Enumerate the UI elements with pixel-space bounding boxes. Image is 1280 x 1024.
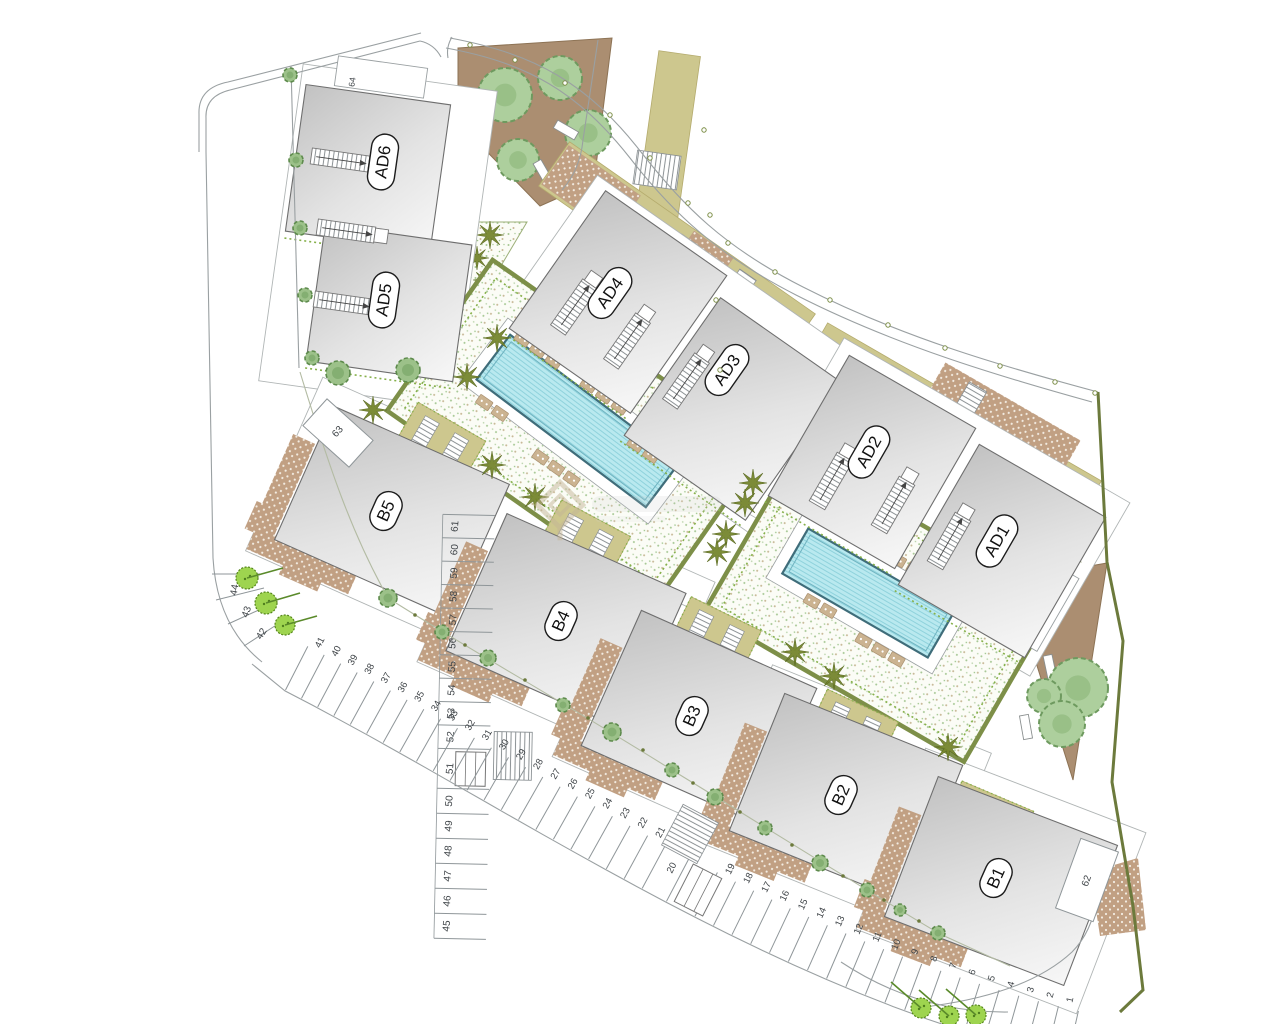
tree-icon xyxy=(931,926,945,940)
palm-icon xyxy=(731,489,759,517)
parking-space-18: 18 xyxy=(741,871,756,885)
tree-icon xyxy=(665,763,679,777)
tree-icon xyxy=(435,625,449,639)
palm-icon xyxy=(476,221,504,249)
tree-icon xyxy=(379,589,397,607)
site-plan-canvas: AD6AD5AD4AD3AD2AD1B5B4B3B2B1616059585756… xyxy=(0,0,1280,1024)
tree-icon xyxy=(707,789,723,805)
tree-icon xyxy=(298,288,312,302)
parking-space-17: 17 xyxy=(759,880,774,894)
bench xyxy=(1019,714,1032,739)
parking-space-58: 58 xyxy=(448,590,460,603)
palm-icon xyxy=(934,733,962,761)
parking-space-54: 54 xyxy=(446,684,458,697)
tree-icon xyxy=(1039,701,1085,747)
tree-icon xyxy=(480,650,496,666)
tree-icon xyxy=(283,68,297,82)
tree-icon xyxy=(556,698,570,712)
parking-space-16: 16 xyxy=(778,889,792,903)
tree-icon xyxy=(289,153,303,167)
parking-space-26: 26 xyxy=(566,777,581,792)
parking-space-64-label: 64 xyxy=(346,76,357,87)
palm-icon xyxy=(478,451,506,479)
parking-space-40: 40 xyxy=(329,644,344,658)
tree-icon xyxy=(758,821,772,835)
tree-icon xyxy=(497,139,539,181)
palm-icon xyxy=(781,638,809,666)
parking-space-48: 48 xyxy=(443,845,455,858)
parking-space-25: 25 xyxy=(583,786,598,801)
parking-space-23: 23 xyxy=(618,806,633,821)
parking-space-32: 32 xyxy=(463,718,478,733)
tree-icon xyxy=(860,883,874,897)
parking-space-20: 20 xyxy=(665,861,680,875)
palm-icon xyxy=(739,469,767,497)
tree-icon xyxy=(293,221,307,235)
parking-space-57: 57 xyxy=(448,613,460,626)
parking-space-47: 47 xyxy=(442,870,454,883)
road-edge xyxy=(448,37,453,58)
parking-space-22: 22 xyxy=(636,816,651,831)
tree-icon xyxy=(812,855,828,871)
parking-space-35: 35 xyxy=(412,689,427,704)
parking-space-56: 56 xyxy=(447,637,459,650)
parking-space-27: 27 xyxy=(549,767,564,782)
parking-space-41: 41 xyxy=(313,635,328,649)
parking-space-31: 31 xyxy=(480,728,495,743)
tree-icon xyxy=(894,904,906,916)
palm-icon xyxy=(453,363,481,391)
site-plan: AD6AD5AD4AD3AD2AD1B5B4B3B2B1616059585756… xyxy=(0,0,1280,1024)
parking-space-34: 34 xyxy=(429,699,444,714)
accessible-parking-marker xyxy=(674,864,722,916)
parking-space-46: 46 xyxy=(442,895,454,908)
palm-icon xyxy=(820,662,848,690)
accessible-parking-marker xyxy=(455,752,486,787)
parking-space-36: 36 xyxy=(396,680,411,695)
tree-icon xyxy=(326,361,350,385)
parking-space-59: 59 xyxy=(449,567,461,580)
parking-space-38: 38 xyxy=(362,662,377,677)
parking-space-39: 39 xyxy=(346,653,361,668)
parking-space-24: 24 xyxy=(601,796,616,811)
tree-icon xyxy=(603,723,621,741)
parking-space-55: 55 xyxy=(447,660,459,673)
parking-space-14: 14 xyxy=(815,906,829,920)
tree-icon xyxy=(305,351,319,365)
parking-space-61: 61 xyxy=(450,520,462,533)
parking-space-15: 15 xyxy=(796,897,810,911)
parking-space-50: 50 xyxy=(444,795,456,808)
parking-space-37: 37 xyxy=(379,671,394,686)
parking-space-42: 42 xyxy=(254,626,269,642)
palm-icon xyxy=(483,324,511,352)
parking-space-28: 28 xyxy=(531,757,546,772)
parking-space-60: 60 xyxy=(449,543,461,556)
road-edge xyxy=(420,41,441,57)
palm-icon xyxy=(359,396,387,424)
parking-space-13: 13 xyxy=(833,914,847,928)
parking-space-49: 49 xyxy=(443,820,455,833)
tree-icon xyxy=(538,56,582,100)
palm-icon xyxy=(703,538,731,566)
tree-icon xyxy=(396,358,420,382)
parking-space-43: 43 xyxy=(240,604,254,619)
parking-space-45: 45 xyxy=(441,920,453,933)
